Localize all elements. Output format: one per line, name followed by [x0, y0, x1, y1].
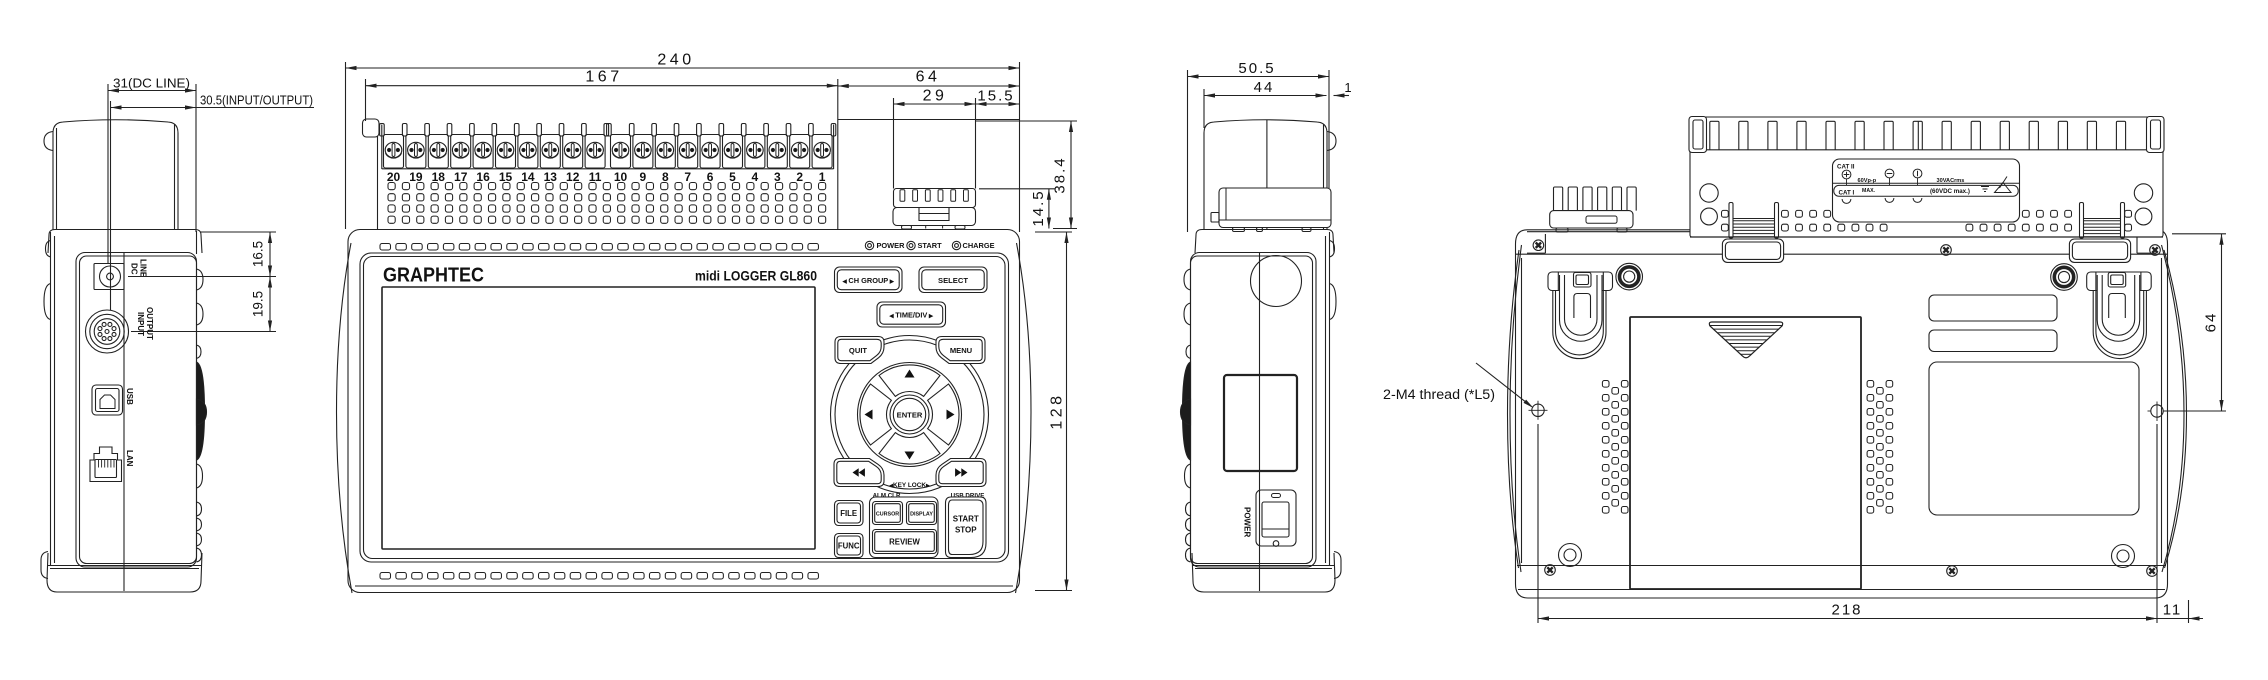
svg-text:16: 16	[476, 170, 490, 184]
svg-text:1: 1	[1344, 80, 1351, 95]
svg-text:12: 12	[566, 170, 580, 184]
svg-text:7: 7	[684, 170, 691, 184]
svg-text:2-M4 thread (*L5): 2-M4 thread (*L5)	[1383, 387, 1495, 402]
svg-text:ALM CLR: ALM CLR	[873, 492, 901, 499]
svg-text:INPUT: INPUT	[136, 312, 145, 336]
svg-text:◀ CH GROUP ▶: ◀ CH GROUP ▶	[842, 276, 895, 285]
svg-text:USB DRIVE: USB DRIVE	[951, 492, 985, 499]
svg-text:128: 128	[1049, 392, 1066, 429]
svg-text:31(DC LINE): 31(DC LINE)	[113, 77, 190, 91]
svg-text:29: 29	[923, 88, 948, 105]
svg-text:(60VDC max.): (60VDC max.)	[1930, 188, 1970, 195]
svg-text:13: 13	[544, 170, 558, 184]
svg-text:8: 8	[662, 170, 669, 184]
svg-text:18: 18	[432, 170, 446, 184]
svg-text:CURSOR: CURSOR	[876, 511, 899, 517]
svg-text:midi LOGGER GL860: midi LOGGER GL860	[695, 268, 817, 284]
svg-text:50.5: 50.5	[1238, 60, 1275, 77]
svg-text:◀ TIME/DIV ▶: ◀ TIME/DIV ▶	[888, 310, 933, 319]
svg-text:USB: USB	[125, 388, 134, 405]
svg-text:19: 19	[409, 170, 423, 184]
svg-text:64: 64	[916, 69, 941, 86]
svg-text:MAX.: MAX.	[1862, 188, 1876, 194]
svg-text:CAT II: CAT II	[1837, 164, 1855, 171]
svg-text:QUIT: QUIT	[849, 346, 868, 355]
svg-text:15.5: 15.5	[977, 88, 1014, 105]
svg-text:GRAPHTEC: GRAPHTEC	[383, 264, 484, 287]
svg-text:START: START	[918, 241, 943, 250]
svg-text:19.5: 19.5	[251, 291, 266, 317]
svg-text:44: 44	[1254, 79, 1275, 96]
svg-text:STOP: STOP	[955, 526, 977, 535]
svg-text:SELECT: SELECT	[938, 276, 968, 285]
svg-text:FILE: FILE	[840, 509, 857, 518]
svg-text:10: 10	[614, 170, 628, 184]
svg-text:ENTER: ENTER	[897, 410, 923, 419]
svg-text:CAT I: CAT I	[1839, 190, 1855, 197]
svg-text:DISPLAY: DISPLAY	[910, 511, 933, 517]
svg-text:1: 1	[819, 170, 826, 184]
svg-text:◀KEY LOCK▶: ◀KEY LOCK▶	[888, 482, 931, 489]
svg-text:FUNC: FUNC	[838, 542, 860, 551]
svg-text:9: 9	[640, 170, 647, 184]
svg-text:240: 240	[657, 52, 694, 69]
svg-text:OUTPUT: OUTPUT	[145, 307, 154, 340]
svg-text:218: 218	[1831, 602, 1862, 619]
svg-text:20: 20	[387, 170, 401, 184]
svg-text:POWER: POWER	[877, 241, 906, 250]
svg-text:DC: DC	[130, 263, 139, 275]
svg-text:REVIEW: REVIEW	[889, 538, 920, 547]
svg-text:30.5(INPUT/OUTPUT): 30.5(INPUT/OUTPUT)	[200, 94, 313, 108]
svg-text:64: 64	[2203, 312, 2220, 333]
svg-text:167: 167	[585, 69, 622, 86]
svg-text:LAN: LAN	[125, 450, 134, 467]
svg-text:38.4: 38.4	[1052, 156, 1069, 193]
svg-text:14: 14	[521, 170, 535, 184]
svg-text:4: 4	[752, 170, 759, 184]
svg-text:POWER: POWER	[1243, 507, 1252, 537]
svg-text:16.5: 16.5	[251, 241, 266, 267]
svg-text:START: START	[953, 515, 979, 524]
svg-text:15: 15	[499, 170, 513, 184]
svg-text:LINE: LINE	[139, 259, 148, 278]
svg-text:3: 3	[774, 170, 781, 184]
svg-text:17: 17	[454, 170, 468, 184]
svg-text:11: 11	[589, 170, 602, 184]
svg-text:CHARGE: CHARGE	[963, 241, 995, 250]
svg-text:MENU: MENU	[950, 346, 973, 355]
svg-text:30VACrms: 30VACrms	[1937, 178, 1965, 184]
svg-text:6: 6	[707, 170, 714, 184]
svg-text:2: 2	[796, 170, 803, 184]
svg-text:60Vp-p: 60Vp-p	[1858, 178, 1877, 184]
svg-text:11: 11	[2163, 602, 2183, 619]
svg-text:5: 5	[729, 170, 736, 184]
svg-text:14.5: 14.5	[1030, 189, 1047, 226]
